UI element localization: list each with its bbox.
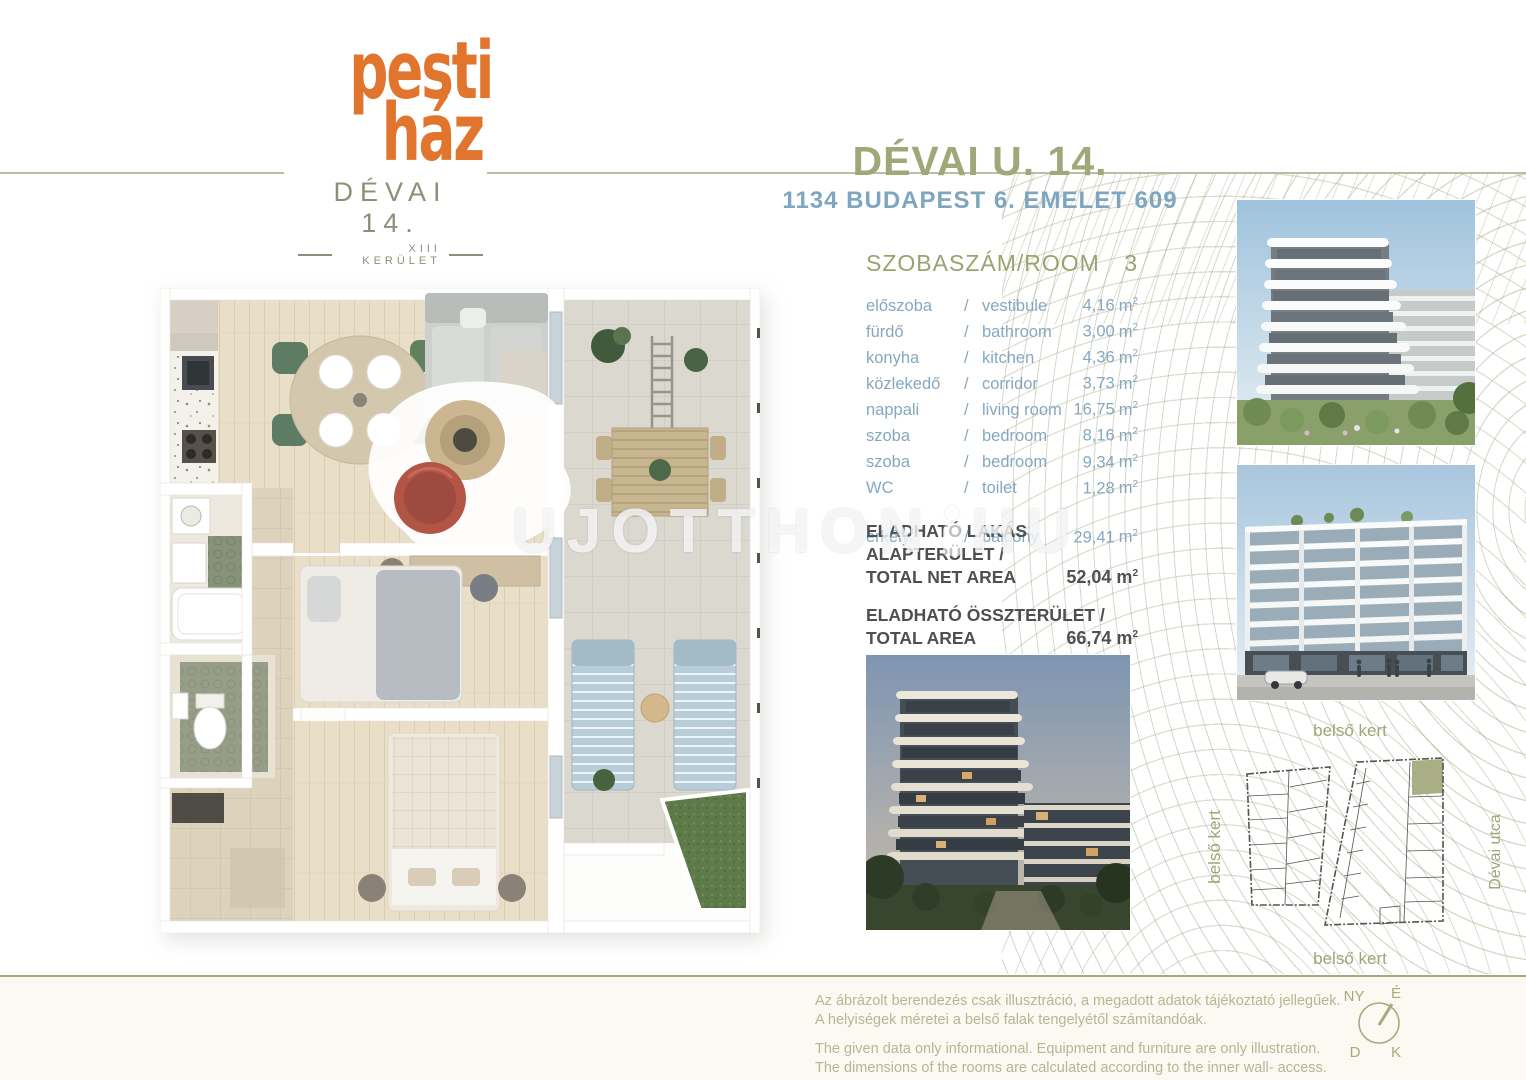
room-name-en: kitchen (982, 348, 1083, 370)
disclaimer-text: Az ábrázolt berendezés csak illusztráció… (815, 992, 1341, 1078)
room-bathroom (170, 495, 250, 643)
facade (1245, 504, 1467, 660)
legend-header: SZOBASZÁM/ROOM 3 (866, 250, 1138, 277)
separator: / (964, 426, 982, 448)
room-area: 3,73m2 (1083, 369, 1138, 395)
legend-header-label: SZOBASZÁM/ROOM (866, 250, 1100, 277)
site-key-plan: belső kert belső kert belső kert Dévai u… (1190, 712, 1526, 975)
total-label-hu: ELADHATÓ LAKÁS ALAPTERÜLET / (866, 520, 1138, 566)
room-name-hu: nappali (866, 400, 964, 422)
separator: / (964, 478, 982, 500)
apartment-floorplan (160, 288, 760, 933)
room-name-hu: szoba (866, 452, 964, 474)
total-label-hu: ELADHATÓ ÖSSZTERÜLET / (866, 604, 1138, 627)
room-row: szoba / bedroom 8,16m2 (866, 421, 1138, 447)
room-row: előszoba / vestibule 4,16m2 (866, 291, 1138, 317)
room-row: közlekedő / corridor 3,73m2 (866, 369, 1138, 395)
disclaimer-en-2: The dimensions of the rooms are calculat… (815, 1059, 1341, 1078)
separator: / (964, 452, 982, 474)
pouf (358, 874, 386, 902)
building-render-day (1237, 200, 1475, 445)
page-subtitle: 1134 BUDAPEST 6. EMELET 609 (770, 187, 1190, 215)
legend-room-count: 3 (1124, 250, 1138, 277)
compass-west-label: NY (1344, 988, 1365, 1005)
building-render-dusk (866, 655, 1130, 930)
room-wc (170, 655, 275, 778)
total-net-area: ELADHATÓ LAKÁS ALAPTERÜLET / TOTAL NET A… (866, 520, 1138, 589)
room-area: 8,16m2 (1083, 421, 1138, 447)
room-name-hu: fürdő (866, 322, 964, 344)
separator: / (964, 400, 982, 422)
area-totals: ELADHATÓ LAKÁS ALAPTERÜLET / TOTAL NET A… (866, 520, 1138, 665)
compass-south-label: D (1350, 1044, 1361, 1061)
siteplan-label-bottom: belső kert (1313, 949, 1387, 968)
siteplan-label-left: belső kert (1205, 810, 1224, 884)
plant (593, 769, 615, 791)
separator: / (964, 374, 982, 396)
bathroom-sink (172, 543, 206, 583)
header-rule-left (0, 172, 284, 174)
total-value: 66,74 m2 (1066, 628, 1138, 649)
room-area: 1,28m2 (1083, 474, 1138, 500)
logo-subtitle: DÉVAI 14. (298, 177, 483, 239)
siteplan-label-right: Dévai utca (1487, 814, 1504, 890)
building-west-outline (1247, 767, 1330, 905)
logo-district: XIII KERÜLET (298, 243, 483, 267)
ottoman (470, 574, 498, 602)
red-armchair (394, 462, 466, 534)
bathtub (172, 588, 250, 640)
room-kitchen (170, 298, 218, 490)
building-render-street (1237, 465, 1475, 700)
room-area: 9,34m2 (1083, 448, 1138, 474)
room-name-en: toilet (982, 478, 1083, 500)
separator: / (964, 296, 982, 318)
terrace (564, 300, 750, 910)
room-name-hu: előszoba (866, 296, 964, 318)
disclaimer-hu-2: A helyiségek méretei a belső falak tenge… (815, 1011, 1341, 1030)
room-name-en: bedroom (982, 426, 1083, 448)
disclaimer-en-1: The given data only informational. Equip… (815, 1040, 1341, 1059)
room-row: fürdő / bathroom 3,00m2 (866, 317, 1138, 343)
room-name-hu: WC (866, 478, 964, 500)
page-title-block: DÉVAI U. 14. 1134 BUDAPEST 6. EMELET 609 (770, 138, 1190, 215)
compass-rose: NY É D K (1332, 985, 1452, 1063)
separator: / (964, 322, 982, 344)
siteplan-label-top: belső kert (1313, 721, 1387, 740)
highlighted-unit (1412, 759, 1443, 795)
dusk-tower (887, 691, 1044, 888)
outdoor-dining-set (596, 428, 726, 516)
room-legend: SZOBASZÁM/ROOM 3 előszoba / vestibule 4,… (866, 250, 1138, 549)
room-row: WC / toilet 1,28m2 (866, 474, 1138, 500)
total-label-en: TOTAL NET AREA (866, 566, 1016, 589)
compass-east-label: K (1391, 1044, 1401, 1061)
room-name-hu: konyha (866, 348, 964, 370)
room-name-hu: közlekedő (866, 374, 964, 396)
room-name-en: corridor (982, 374, 1083, 396)
building-east-outline (1325, 758, 1443, 925)
room-row: szoba / bedroom 9,34m2 (866, 448, 1138, 474)
toilet (194, 707, 226, 749)
total-value: 52,04 m2 (1066, 567, 1138, 588)
pouf (498, 874, 526, 902)
compass-north-label: É (1391, 985, 1401, 1002)
room-row: konyha / kitchen 4,36m2 (866, 343, 1138, 369)
room-area: 4,36m2 (1083, 343, 1138, 369)
room-area: 16,75m2 (1073, 395, 1138, 421)
room-name-en: bathroom (982, 322, 1083, 344)
room-area: 3,00m2 (1083, 317, 1138, 343)
total-label-en: TOTAL AREA (866, 627, 976, 650)
pesti-haz-logo: pesti ház DÉVAI 14. XIII KERÜLET (298, 38, 483, 267)
logo-word-haz: ház (350, 100, 483, 165)
room-name-en: bedroom (982, 452, 1083, 474)
compass-needle-icon (1379, 1004, 1392, 1025)
room-name-en: vestibule (982, 296, 1083, 318)
brochure-page: pesti ház DÉVAI 14. XIII KERÜLET DÉVAI U… (0, 0, 1526, 1080)
page-title: DÉVAI U. 14. (770, 138, 1190, 185)
separator: / (964, 348, 982, 370)
room-row: nappali / living room 16,75m2 (866, 395, 1138, 421)
room-name-en: living room (982, 400, 1073, 422)
footer-band: Az ábrázolt berendezés csak illusztráció… (0, 975, 1526, 1080)
room-name-hu: szoba (866, 426, 964, 448)
cooktop (182, 430, 216, 463)
side-table (641, 694, 669, 722)
room-area: 4,16m2 (1083, 291, 1138, 317)
plant (684, 348, 708, 372)
total-area: ELADHATÓ ÖSSZTERÜLET / TOTAL AREA 66,74 … (866, 604, 1138, 650)
disclaimer-hu-1: Az ábrázolt berendezés csak illusztráció… (815, 992, 1341, 1011)
